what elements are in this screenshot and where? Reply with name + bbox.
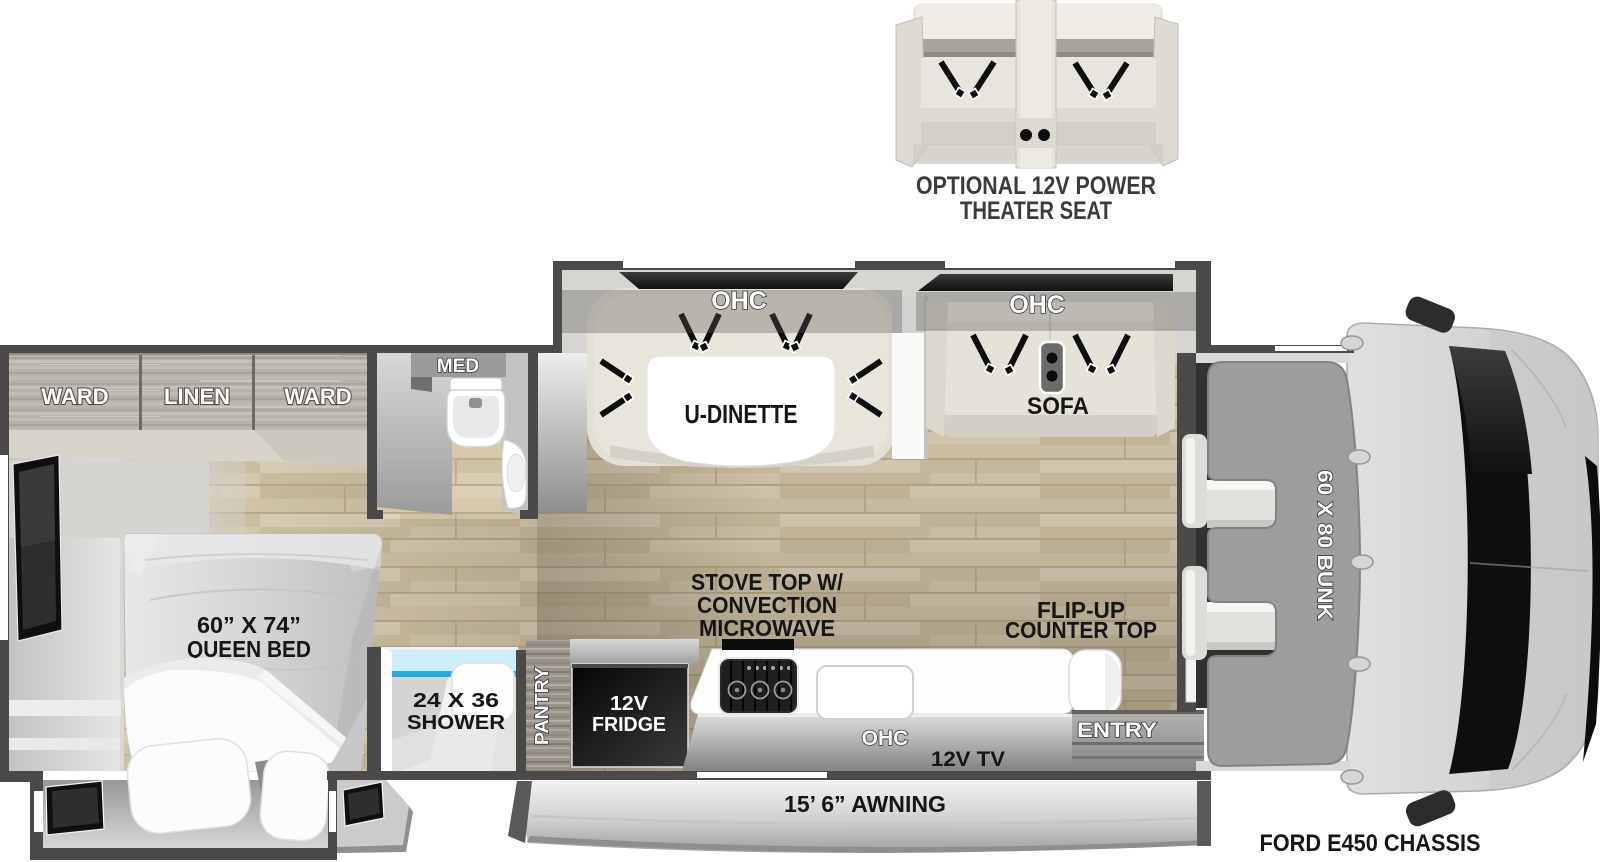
svg-text:WARD: WARD <box>41 384 108 409</box>
svg-text:ENTRY: ENTRY <box>1077 719 1157 742</box>
svg-text:COUNTER TOP: COUNTER TOP <box>1005 617 1157 643</box>
svg-text:SOFA: SOFA <box>1027 393 1089 420</box>
svg-text:WARD: WARD <box>284 384 351 409</box>
svg-text:60” X 74”: 60” X 74” <box>197 612 301 638</box>
svg-text:OPTIONAL 12V POWER: OPTIONAL 12V POWER <box>916 172 1156 200</box>
svg-text:MED: MED <box>437 356 479 377</box>
svg-text:12V: 12V <box>610 693 649 715</box>
svg-text:OHC: OHC <box>862 727 909 750</box>
svg-text:15’ 6” AWNING: 15’ 6” AWNING <box>784 791 946 817</box>
svg-text:LINEN: LINEN <box>164 384 230 409</box>
svg-text:THEATER SEAT: THEATER SEAT <box>960 197 1112 225</box>
svg-text:SHOWER: SHOWER <box>407 712 506 734</box>
svg-text:60 X 80 BUNK: 60 X 80 BUNK <box>1313 470 1336 620</box>
svg-text:U-DINETTE: U-DINETTE <box>685 399 798 429</box>
svg-text:PANTRY: PANTRY <box>532 667 552 745</box>
svg-text:OHC: OHC <box>711 287 767 315</box>
svg-text:OHC: OHC <box>1009 291 1065 319</box>
svg-text:24 X 36: 24 X 36 <box>413 690 499 712</box>
svg-text:MICROWAVE: MICROWAVE <box>699 615 835 641</box>
svg-text:12V TV: 12V TV <box>931 748 1005 771</box>
svg-text:FORD E450 CHASSIS: FORD E450 CHASSIS <box>1260 830 1481 857</box>
svg-text:FRIDGE: FRIDGE <box>592 714 666 736</box>
